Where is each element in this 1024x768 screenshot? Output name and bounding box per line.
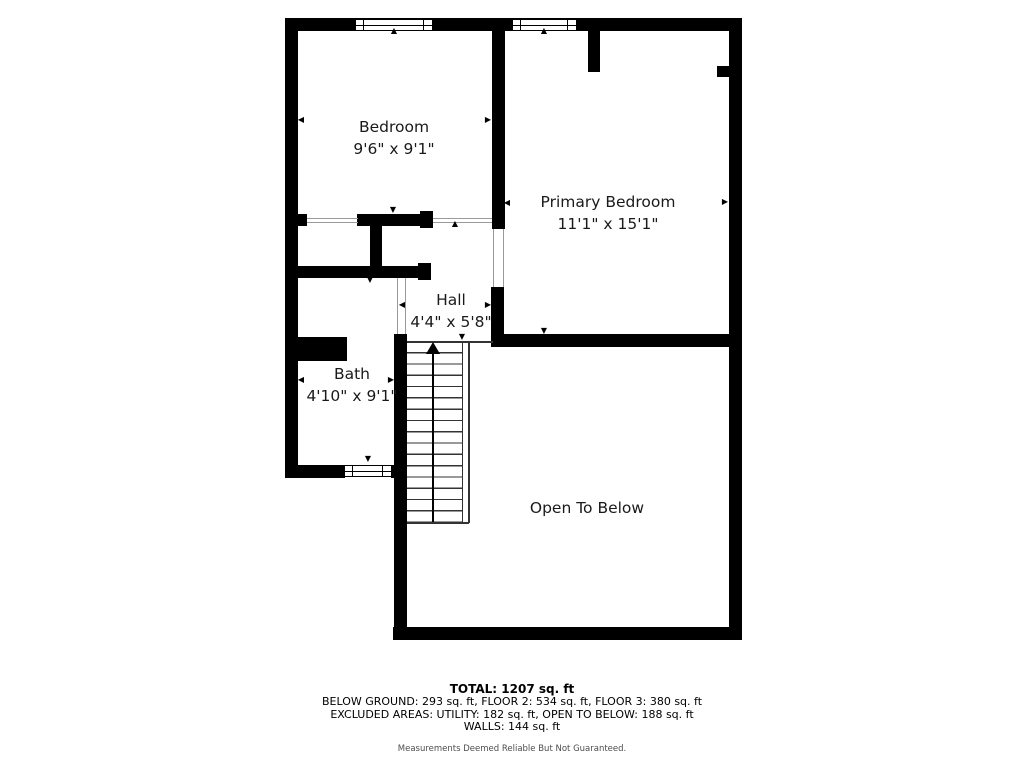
room-label-hall: Hall 4'4" x 5'8" — [410, 289, 491, 333]
wall-primary-bottom — [492, 334, 742, 347]
room-label-bedroom: Bedroom 9'6" x 9'1" — [353, 116, 434, 160]
room-label-primary-bedroom: Primary Bedroom 11'1" x 15'1" — [541, 191, 676, 235]
staircase-treads — [407, 342, 463, 523]
room-name: Hall — [410, 289, 491, 311]
room-dimensions: 4'4" x 5'8" — [410, 311, 491, 333]
opening-line — [433, 218, 492, 219]
wall-bath-bottom-left — [285, 465, 345, 478]
wall-bath-bottom-right — [391, 465, 402, 478]
opening-line — [397, 278, 398, 334]
disclaimer: Measurements Deemed Reliable But Not Gua… — [0, 744, 1024, 754]
wall-jamb-closet — [418, 263, 431, 280]
dim-arrow-down-icon: ▼ — [365, 455, 371, 463]
room-dimensions: 11'1" x 15'1" — [541, 213, 676, 235]
room-name: Open To Below — [530, 497, 644, 519]
opening-line — [503, 229, 504, 287]
room-dimensions: 9'6" x 9'1" — [353, 138, 434, 160]
dim-arrow-right-icon: ▶ — [722, 198, 728, 206]
room-label-bath: Bath 4'10" x 9'1" — [306, 363, 397, 407]
dim-arrow-up-icon: ▲ — [391, 27, 397, 35]
dim-arrow-down-icon: ▼ — [390, 206, 396, 214]
room-label-open-to-below: Open To Below — [530, 497, 644, 519]
floor-areas: BELOW GROUND: 293 sq. ft, FLOOR 2: 534 s… — [0, 696, 1024, 709]
open-to-below-boundary-h — [407, 522, 469, 524]
dim-arrow-down-icon: ▼ — [367, 276, 373, 284]
open-to-below-boundary-v — [468, 342, 470, 523]
opening-line — [433, 222, 492, 223]
dim-arrow-down-icon: ▼ — [541, 327, 547, 335]
room-name: Primary Bedroom — [541, 191, 676, 213]
dim-arrow-up-icon: ▲ — [452, 220, 458, 228]
wall-left-upper — [285, 18, 298, 478]
walls-area: WALLS: 144 sq. ft — [0, 721, 1024, 734]
dim-arrow-up-icon: ▲ — [541, 27, 547, 35]
wall-bedroom-bottom-stub — [298, 214, 307, 226]
dim-arrow-left-icon: ◀ — [298, 116, 304, 124]
area-summary: TOTAL: 1207 sq. ft BELOW GROUND: 293 sq.… — [0, 683, 1024, 754]
dim-arrow-down-icon: ▼ — [459, 333, 465, 341]
wall-right — [729, 18, 742, 640]
dim-arrow-right-icon: ▶ — [485, 116, 491, 124]
wall-bottom — [393, 627, 742, 640]
opening-line — [307, 222, 358, 223]
wall-bath-chase — [298, 337, 347, 361]
room-name: Bath — [306, 363, 397, 385]
room-dimensions: 4'10" x 9'1" — [306, 385, 397, 407]
dim-arrow-left-icon: ◀ — [298, 376, 304, 384]
stair-direction-line — [432, 352, 434, 523]
window-bath — [344, 465, 392, 477]
opening-line — [307, 218, 358, 219]
wall-nub-right — [717, 66, 729, 77]
room-name: Bedroom — [353, 116, 434, 138]
opening-line — [493, 229, 494, 287]
dim-arrow-left-icon: ◀ — [504, 199, 510, 207]
floor-plan-page: ◀ ▶ ▲ ▼ ◀ ▶ ▲ ▼ ◀ ▶ ▲ ▼ ◀ ▶ ▼ ▼ Bedroom … — [0, 0, 1024, 768]
opening-line — [405, 278, 406, 334]
dim-arrow-left-icon: ◀ — [399, 301, 405, 309]
stair-up-arrow-icon — [426, 342, 440, 354]
wall-jamb-bedroom — [420, 211, 433, 228]
wall-stub-primary-top — [588, 31, 600, 72]
wall-closet-bottom — [292, 266, 431, 278]
